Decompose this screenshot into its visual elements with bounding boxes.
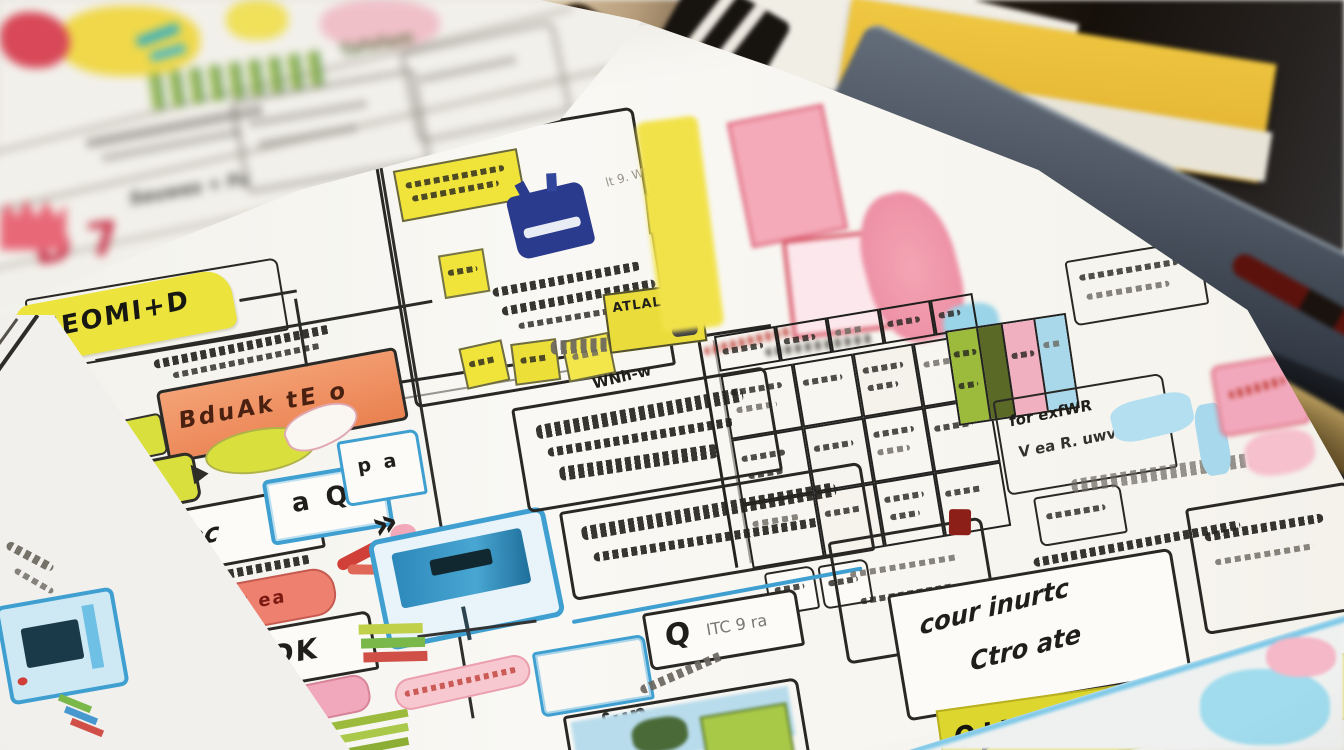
icon-handle bbox=[546, 173, 557, 192]
photo-scene: TIEOMI+D BduAk tE o va e ck U I aur NE+ … bbox=[0, 0, 1344, 750]
icon-band bbox=[523, 216, 582, 239]
scribble-row bbox=[850, 554, 959, 578]
pink-sketch-box bbox=[727, 103, 849, 248]
right-lower-box bbox=[1185, 481, 1344, 635]
red-glyph bbox=[949, 509, 971, 535]
right-box-line1: for exfWR bbox=[1009, 396, 1093, 431]
blue-card-label: p a bbox=[356, 449, 401, 478]
red-blob bbox=[0, 12, 70, 68]
scribble-row bbox=[1086, 280, 1170, 300]
scribble-row bbox=[1215, 543, 1315, 565]
scribble-row bbox=[520, 354, 549, 364]
monitor-stand bbox=[461, 606, 472, 640]
table-cell bbox=[878, 300, 936, 344]
right-small-box bbox=[1033, 483, 1128, 547]
scribble-row bbox=[1079, 259, 1179, 281]
table-cell bbox=[827, 309, 885, 353]
stripe bbox=[359, 623, 423, 635]
right-box-line2: V ea R. uwvo bbox=[1018, 422, 1127, 462]
search-q-glyph: Q bbox=[664, 615, 691, 654]
pink-sketch-blob bbox=[1266, 637, 1336, 677]
product-sketch-icon bbox=[505, 180, 596, 260]
table-cell bbox=[853, 343, 924, 417]
scribble-row bbox=[447, 265, 478, 276]
thumb-yellow bbox=[458, 339, 510, 390]
cyan-sketch-blob bbox=[1200, 669, 1330, 745]
scribble-row bbox=[1046, 504, 1106, 520]
yellow-blob bbox=[58, 6, 200, 76]
tv-side-stripe bbox=[81, 604, 104, 669]
search-box-sketch: Q ITC 9 ra bbox=[642, 588, 805, 671]
icon-handle bbox=[515, 181, 531, 200]
search-hint: ITC 9 ra bbox=[705, 610, 769, 639]
table-cell bbox=[775, 317, 833, 361]
yellow-column bbox=[635, 115, 724, 333]
blue-card: p a bbox=[336, 428, 428, 507]
table-cell bbox=[863, 408, 934, 482]
stripe bbox=[361, 637, 425, 649]
tv-dot bbox=[17, 677, 28, 687]
tv-screen bbox=[20, 619, 84, 668]
stripe bbox=[363, 651, 427, 663]
script-line2: Ctro ate bbox=[970, 619, 1082, 677]
yellow-blob bbox=[226, 0, 288, 40]
pink-blob bbox=[1242, 425, 1318, 480]
tv-sketch bbox=[0, 586, 130, 705]
pencil-scribble bbox=[5, 540, 55, 572]
table-cell bbox=[793, 354, 864, 428]
stripe-stack bbox=[359, 623, 424, 677]
red-crown-blob bbox=[0, 196, 66, 250]
card-yellow-square bbox=[438, 248, 491, 299]
scribble-row bbox=[468, 356, 497, 368]
